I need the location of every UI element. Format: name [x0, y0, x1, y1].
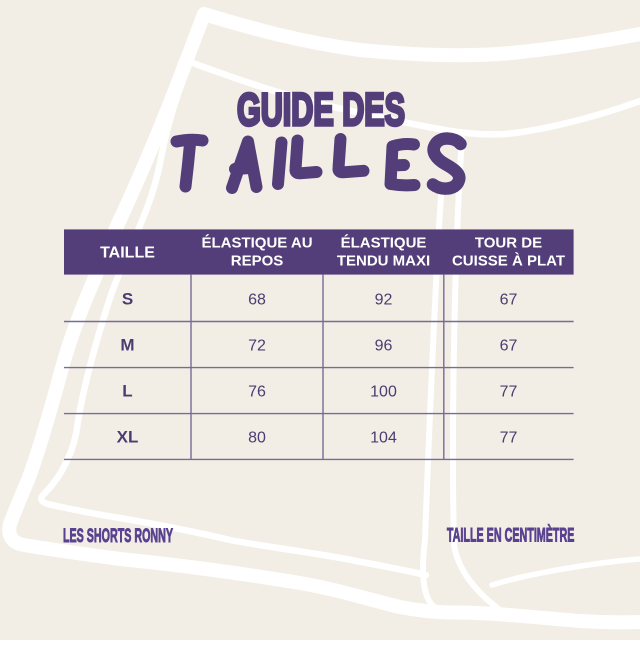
svg-text:76: 76 — [248, 384, 266, 401]
svg-text:67: 67 — [500, 338, 518, 355]
svg-text:67: 67 — [500, 292, 518, 309]
svg-text:77: 77 — [500, 430, 518, 447]
svg-text:GUIDE DES: GUIDE DES — [237, 84, 405, 135]
svg-text:68: 68 — [248, 292, 266, 309]
svg-text:L: L — [122, 382, 132, 401]
svg-text:S: S — [122, 290, 133, 309]
svg-text:72: 72 — [248, 338, 266, 355]
svg-text:ÉLASTIQUE AU: ÉLASTIQUE AU — [201, 235, 312, 252]
svg-text:REPOS: REPOS — [231, 253, 284, 270]
svg-text:TAILLE: TAILLE — [100, 245, 155, 262]
svg-text:ÉLASTIQUE: ÉLASTIQUE — [341, 235, 427, 252]
svg-text:77: 77 — [500, 384, 518, 401]
svg-text:CUISSE À PLAT: CUISSE À PLAT — [452, 253, 565, 270]
svg-text:96: 96 — [375, 338, 393, 355]
svg-text:TOUR DE: TOUR DE — [475, 235, 542, 252]
svg-text:100: 100 — [370, 384, 397, 401]
svg-text:TAILLE EN CENTIMÈTRE: TAILLE EN CENTIMÈTRE — [447, 523, 575, 546]
svg-text:104: 104 — [370, 430, 397, 447]
svg-text:TENDU MAXI: TENDU MAXI — [337, 253, 430, 270]
svg-text:LES SHORTS RONNY: LES SHORTS RONNY — [63, 525, 173, 547]
svg-text:80: 80 — [248, 430, 266, 447]
svg-text:M: M — [120, 336, 134, 355]
svg-text:92: 92 — [375, 292, 393, 309]
svg-text:XL: XL — [117, 428, 139, 447]
